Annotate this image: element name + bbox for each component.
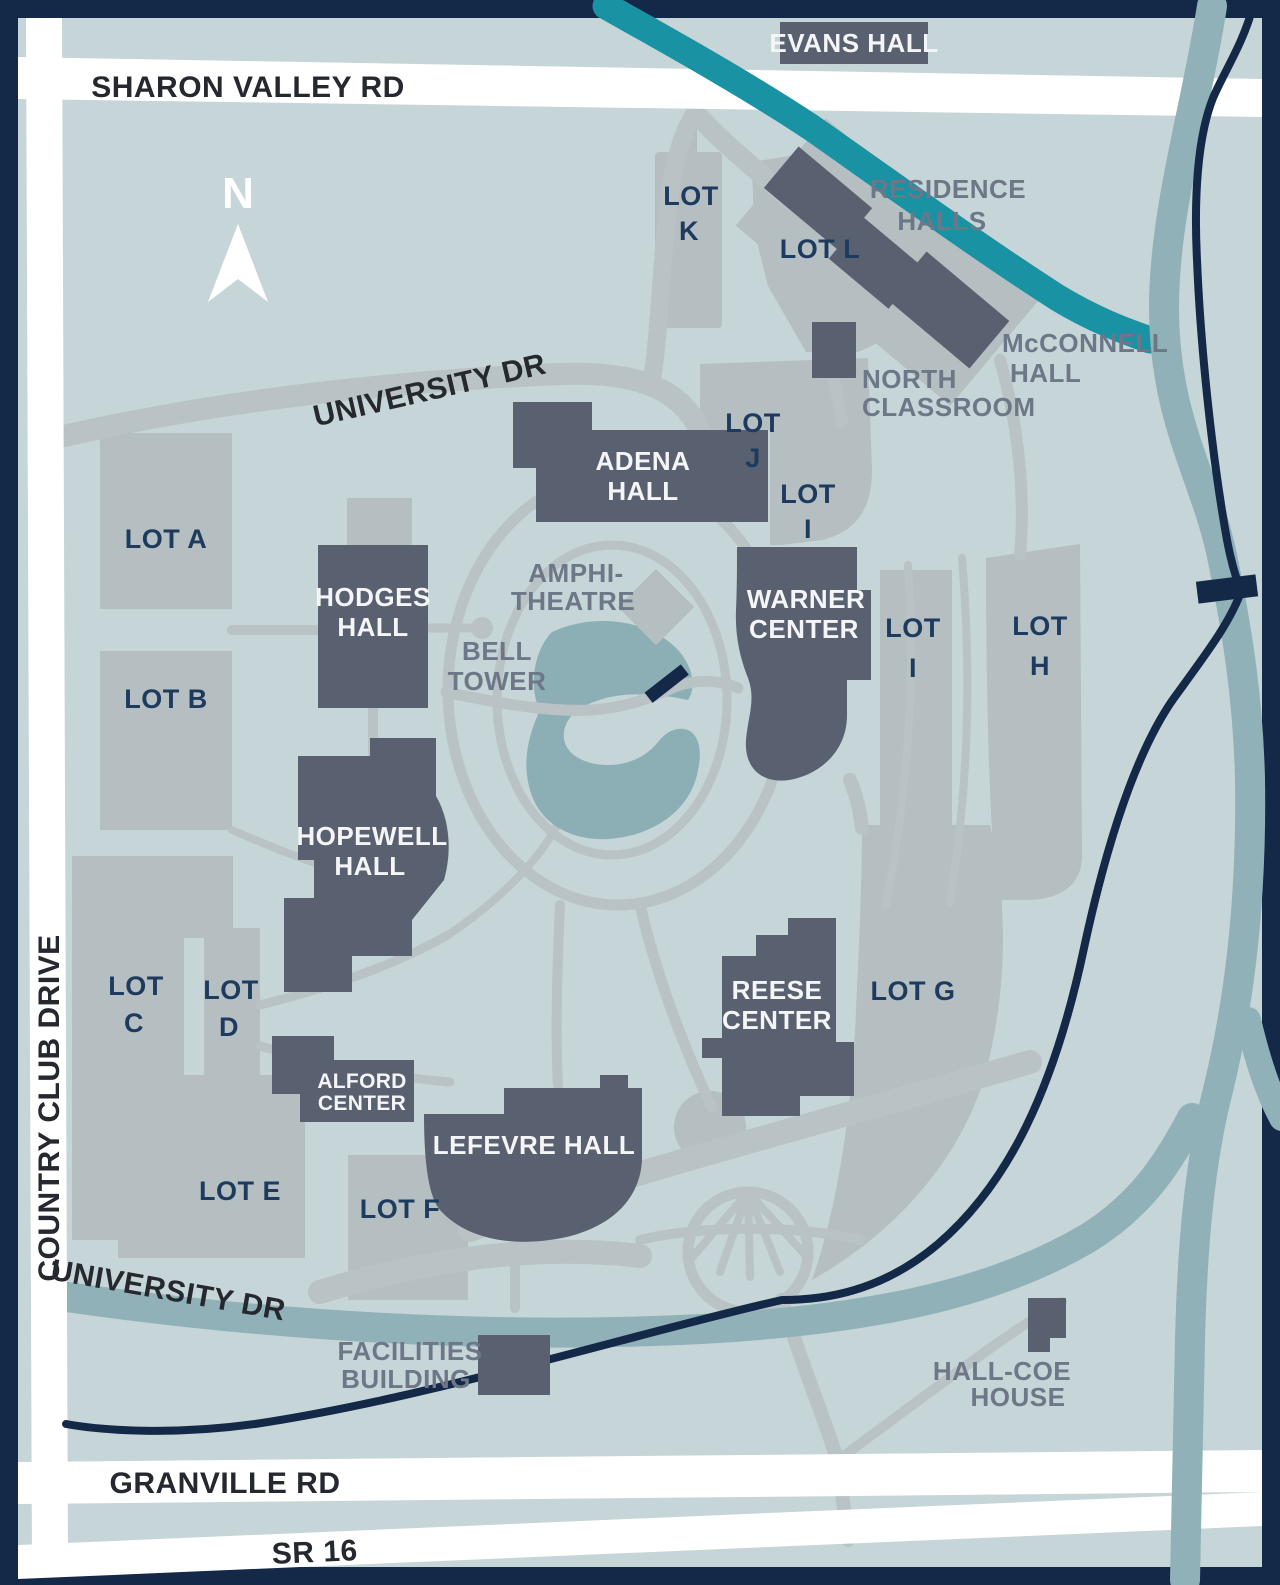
lot-h-label-line1: LOT [1012,611,1068,641]
lot-e-area [118,1075,305,1258]
road-label-country-club: COUNTRY CLUB DRIVE [33,934,66,1281]
lot-k-label-line2: K [679,216,699,246]
campus-map-canvas: N SHARON VALLEY RD UNIVERSITY DR UNIVERS… [0,0,1280,1585]
road-label-sharon-valley: SHARON VALLEY RD [91,71,405,104]
road-country-club [26,18,68,1567]
warner-center-label-line2: CENTER [749,614,859,644]
alford-center-label-line2: CENTER [318,1092,406,1115]
lot-b-area [100,651,232,830]
lot-d-label-line1: LOT [203,975,259,1005]
hodges-hall-label-line1: HODGES [315,582,431,612]
bell-tower-label-line2: TOWER [448,666,547,696]
lot-c-label-line2: C [124,1008,144,1038]
residence-halls-label-line1: RESIDENCE [870,174,1026,204]
road-label-granville: GRANVILLE RD [110,1467,341,1500]
warner-center-label-line1: WARNER [747,584,866,614]
bell-tower-label-line1: BELL [462,636,532,666]
amphitheatre-label-line2: THEATRE [511,586,635,616]
lot-f-label: LOT F [360,1194,440,1224]
mcconnell-hall-label-line2: HALL [1010,358,1081,388]
lot-l-label: LOT L [780,234,860,264]
service-building-gray [347,498,412,546]
north-classroom-label-line1: NORTH [862,364,957,394]
lot-g-label: LOT G [871,976,956,1006]
walkway-path [834,378,842,422]
reese-center-label-line2: CENTER [722,1005,832,1035]
mcconnell-hall-label-line1: McCONNELL [1002,328,1168,358]
hodges-hall-label-line2: HALL [337,612,408,642]
lot-i-east-label-line1: LOT [885,613,941,643]
evans-hall-label: EVANS HALL [769,28,938,58]
hopewell-hall-label-line2: HALL [334,851,405,881]
alford-center-label-line1: ALFORD [317,1070,406,1093]
lot-i-north-label-line1: LOT [780,479,836,509]
lot-b-label: LOT B [124,684,208,714]
adena-hall-label-line2: HALL [607,476,678,506]
building-north-classroom [812,322,856,378]
lot-d-label-line2: D [219,1012,239,1042]
facilities-label-line2: BUILDING [341,1364,471,1394]
lot-j-label-line2: J [745,443,761,473]
compass-north-label: N [222,169,254,218]
lefevre-hall-label: LEFEVRE HALL [433,1130,635,1160]
walkway-path [557,905,560,1085]
hall-coe-label-line2: HOUSE [971,1382,1066,1412]
reese-center-label-line1: REESE [732,975,823,1005]
lot-i-east-label-line2: I [909,653,917,683]
building-facilities [478,1335,550,1395]
amphitheatre-label-line1: AMPHI- [528,558,623,588]
lot-j-label-line1: LOT [725,408,781,438]
campus-map: N SHARON VALLEY RD UNIVERSITY DR UNIVERS… [0,0,1280,1585]
lot-h-label-line2: H [1030,651,1050,681]
north-classroom-label-line2: CLASSROOM [862,392,1036,422]
road-label-sr16: SR 16 [271,1534,358,1571]
lot-e-label: LOT E [199,1176,281,1206]
lot-h-area [986,544,1082,900]
hopewell-hall-label-line1: HOPEWELL [296,821,447,851]
lot-a-label: LOT A [125,524,208,554]
facilities-label-line1: FACILITIES [337,1336,482,1366]
lot-c-label-line1: LOT [108,971,164,1001]
adena-hall-label-line1: ADENA [596,446,691,476]
lot-k-label-line1: LOT [663,181,719,211]
residence-halls-label-line2: HALLS [897,206,986,236]
lot-i-north-label-line2: I [804,514,812,544]
lot-a-area [100,433,232,609]
